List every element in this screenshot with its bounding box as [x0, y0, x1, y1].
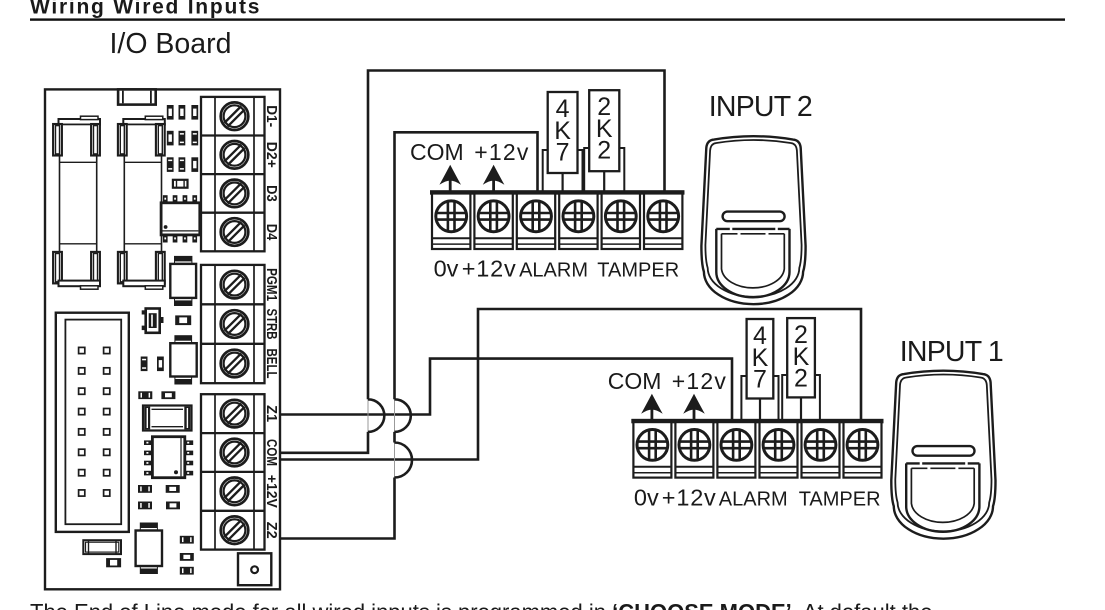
svg-text:D2+: D2+ [263, 142, 279, 168]
svg-text:2: 2 [597, 137, 611, 165]
svg-text:TAMPER: TAMPER [597, 259, 679, 281]
svg-text:PGM1: PGM1 [263, 268, 279, 301]
svg-text:I/O Board: I/O Board [110, 28, 232, 60]
svg-text:D1-: D1- [263, 105, 279, 127]
svg-text:+12V: +12V [263, 475, 279, 508]
svg-text:D3: D3 [263, 185, 279, 202]
svg-text:COM: COM [608, 368, 662, 394]
svg-text:BELL: BELL [263, 349, 279, 379]
svg-text:COM: COM [263, 439, 279, 466]
svg-text:INPUT 2: INPUT 2 [709, 91, 812, 123]
svg-text:Z2: Z2 [263, 522, 279, 539]
svg-text:ALARM: ALARM [719, 489, 788, 511]
svg-text:+12v: +12v [672, 368, 727, 394]
svg-text:+12v: +12v [474, 139, 529, 165]
svg-text:TAMPER: TAMPER [799, 489, 881, 511]
svg-text:D4: D4 [263, 224, 279, 241]
svg-text:+12v: +12v [462, 255, 517, 281]
svg-text:Z1: Z1 [263, 405, 279, 422]
svg-text:The End of Line mode for all w: The End of Line mode for all wired input… [30, 600, 932, 610]
svg-text:INPUT 1: INPUT 1 [900, 336, 1003, 368]
svg-text:0v: 0v [434, 255, 459, 281]
svg-text:COM: COM [410, 139, 464, 165]
svg-text:STRB: STRB [263, 309, 279, 340]
svg-text:ALARM: ALARM [519, 259, 588, 281]
svg-text:2: 2 [794, 365, 808, 393]
svg-text:7: 7 [556, 139, 570, 167]
svg-text:+12v: +12v [662, 485, 717, 511]
svg-text:0v: 0v [634, 485, 659, 511]
svg-text:Wiring Wired Inputs: Wiring Wired Inputs [30, 0, 261, 19]
svg-text:7: 7 [753, 366, 767, 394]
